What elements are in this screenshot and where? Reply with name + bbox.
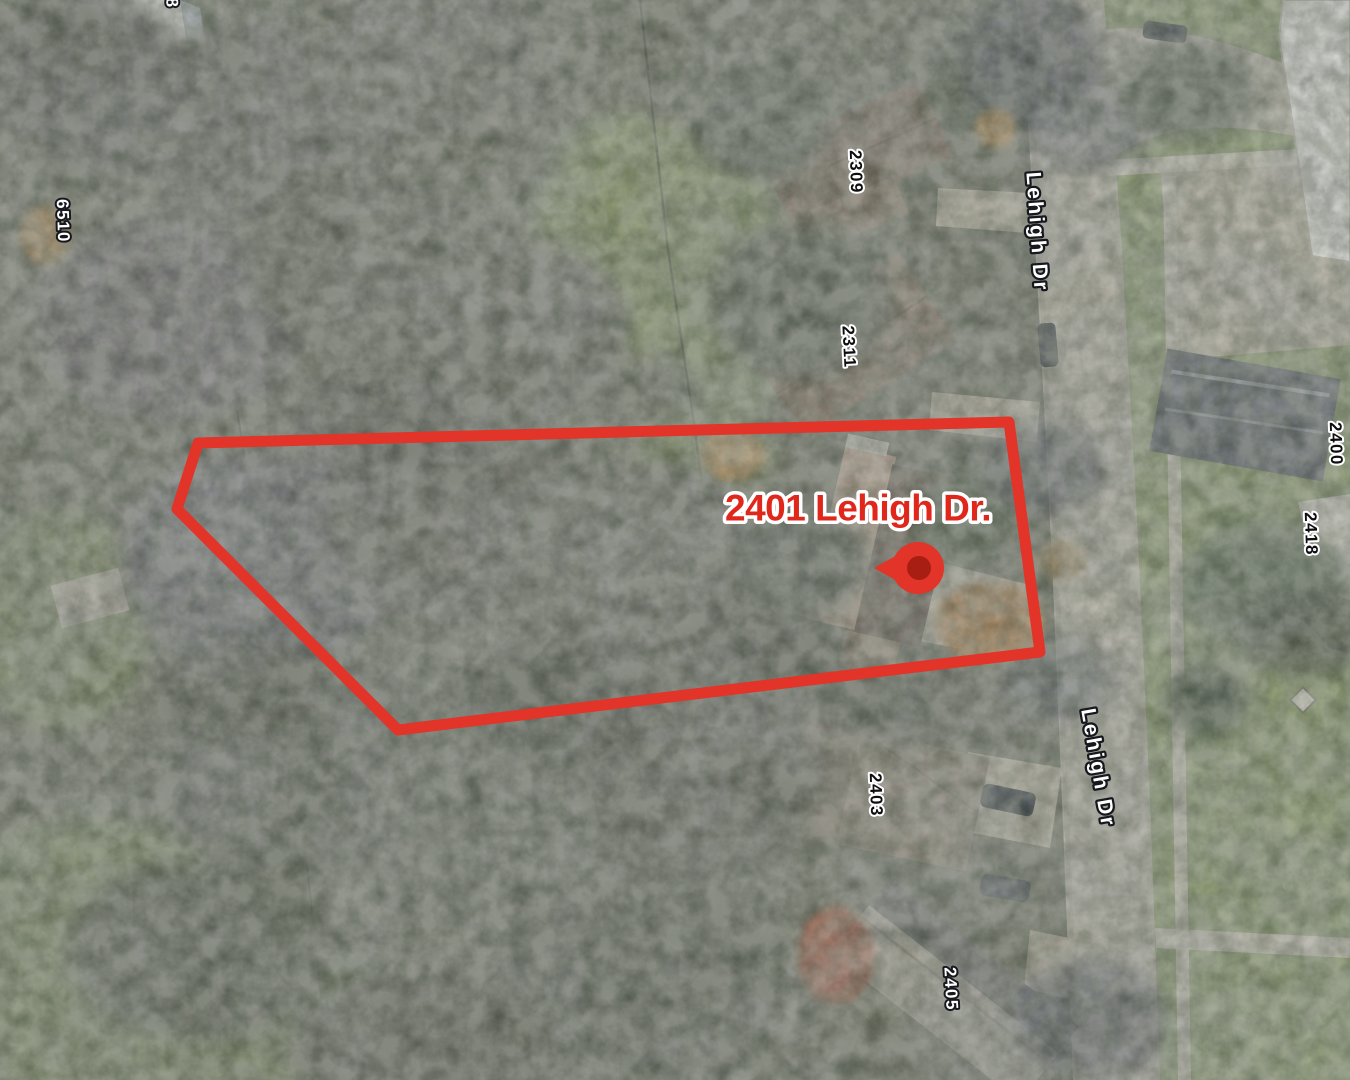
address-label-2309: 2309 [846,150,867,194]
address-label-2311: 2311 [838,325,859,369]
address-label-2418: 2418 [1301,512,1322,556]
map-canvas: 8 6510 2309 2311 2400 2418 2403 2405 Leh… [0,0,1350,1080]
address-label-6508-partial: 8 [162,0,181,9]
property-address-label: 2401 Lehigh Dr. [725,488,991,529]
satellite-map[interactable]: 8 6510 2309 2311 2400 2418 2403 2405 Leh… [0,0,1350,1080]
address-label-2405: 2405 [940,967,961,1012]
address-label-6510: 6510 [53,199,74,243]
address-label-2403: 2403 [866,773,887,817]
address-label-2400: 2400 [1326,422,1347,466]
